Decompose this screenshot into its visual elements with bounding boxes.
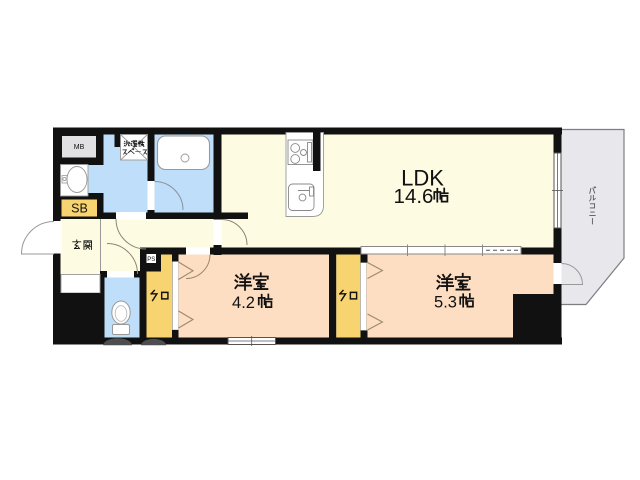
svg-text:5.3: 5.3 <box>434 294 457 312</box>
svg-text:PS: PS <box>147 257 155 263</box>
svg-text:14.6: 14.6 <box>394 185 434 208</box>
svg-text:SB: SB <box>71 202 88 216</box>
svg-text:MB: MB <box>74 144 85 151</box>
svg-text:4.2: 4.2 <box>232 294 255 312</box>
